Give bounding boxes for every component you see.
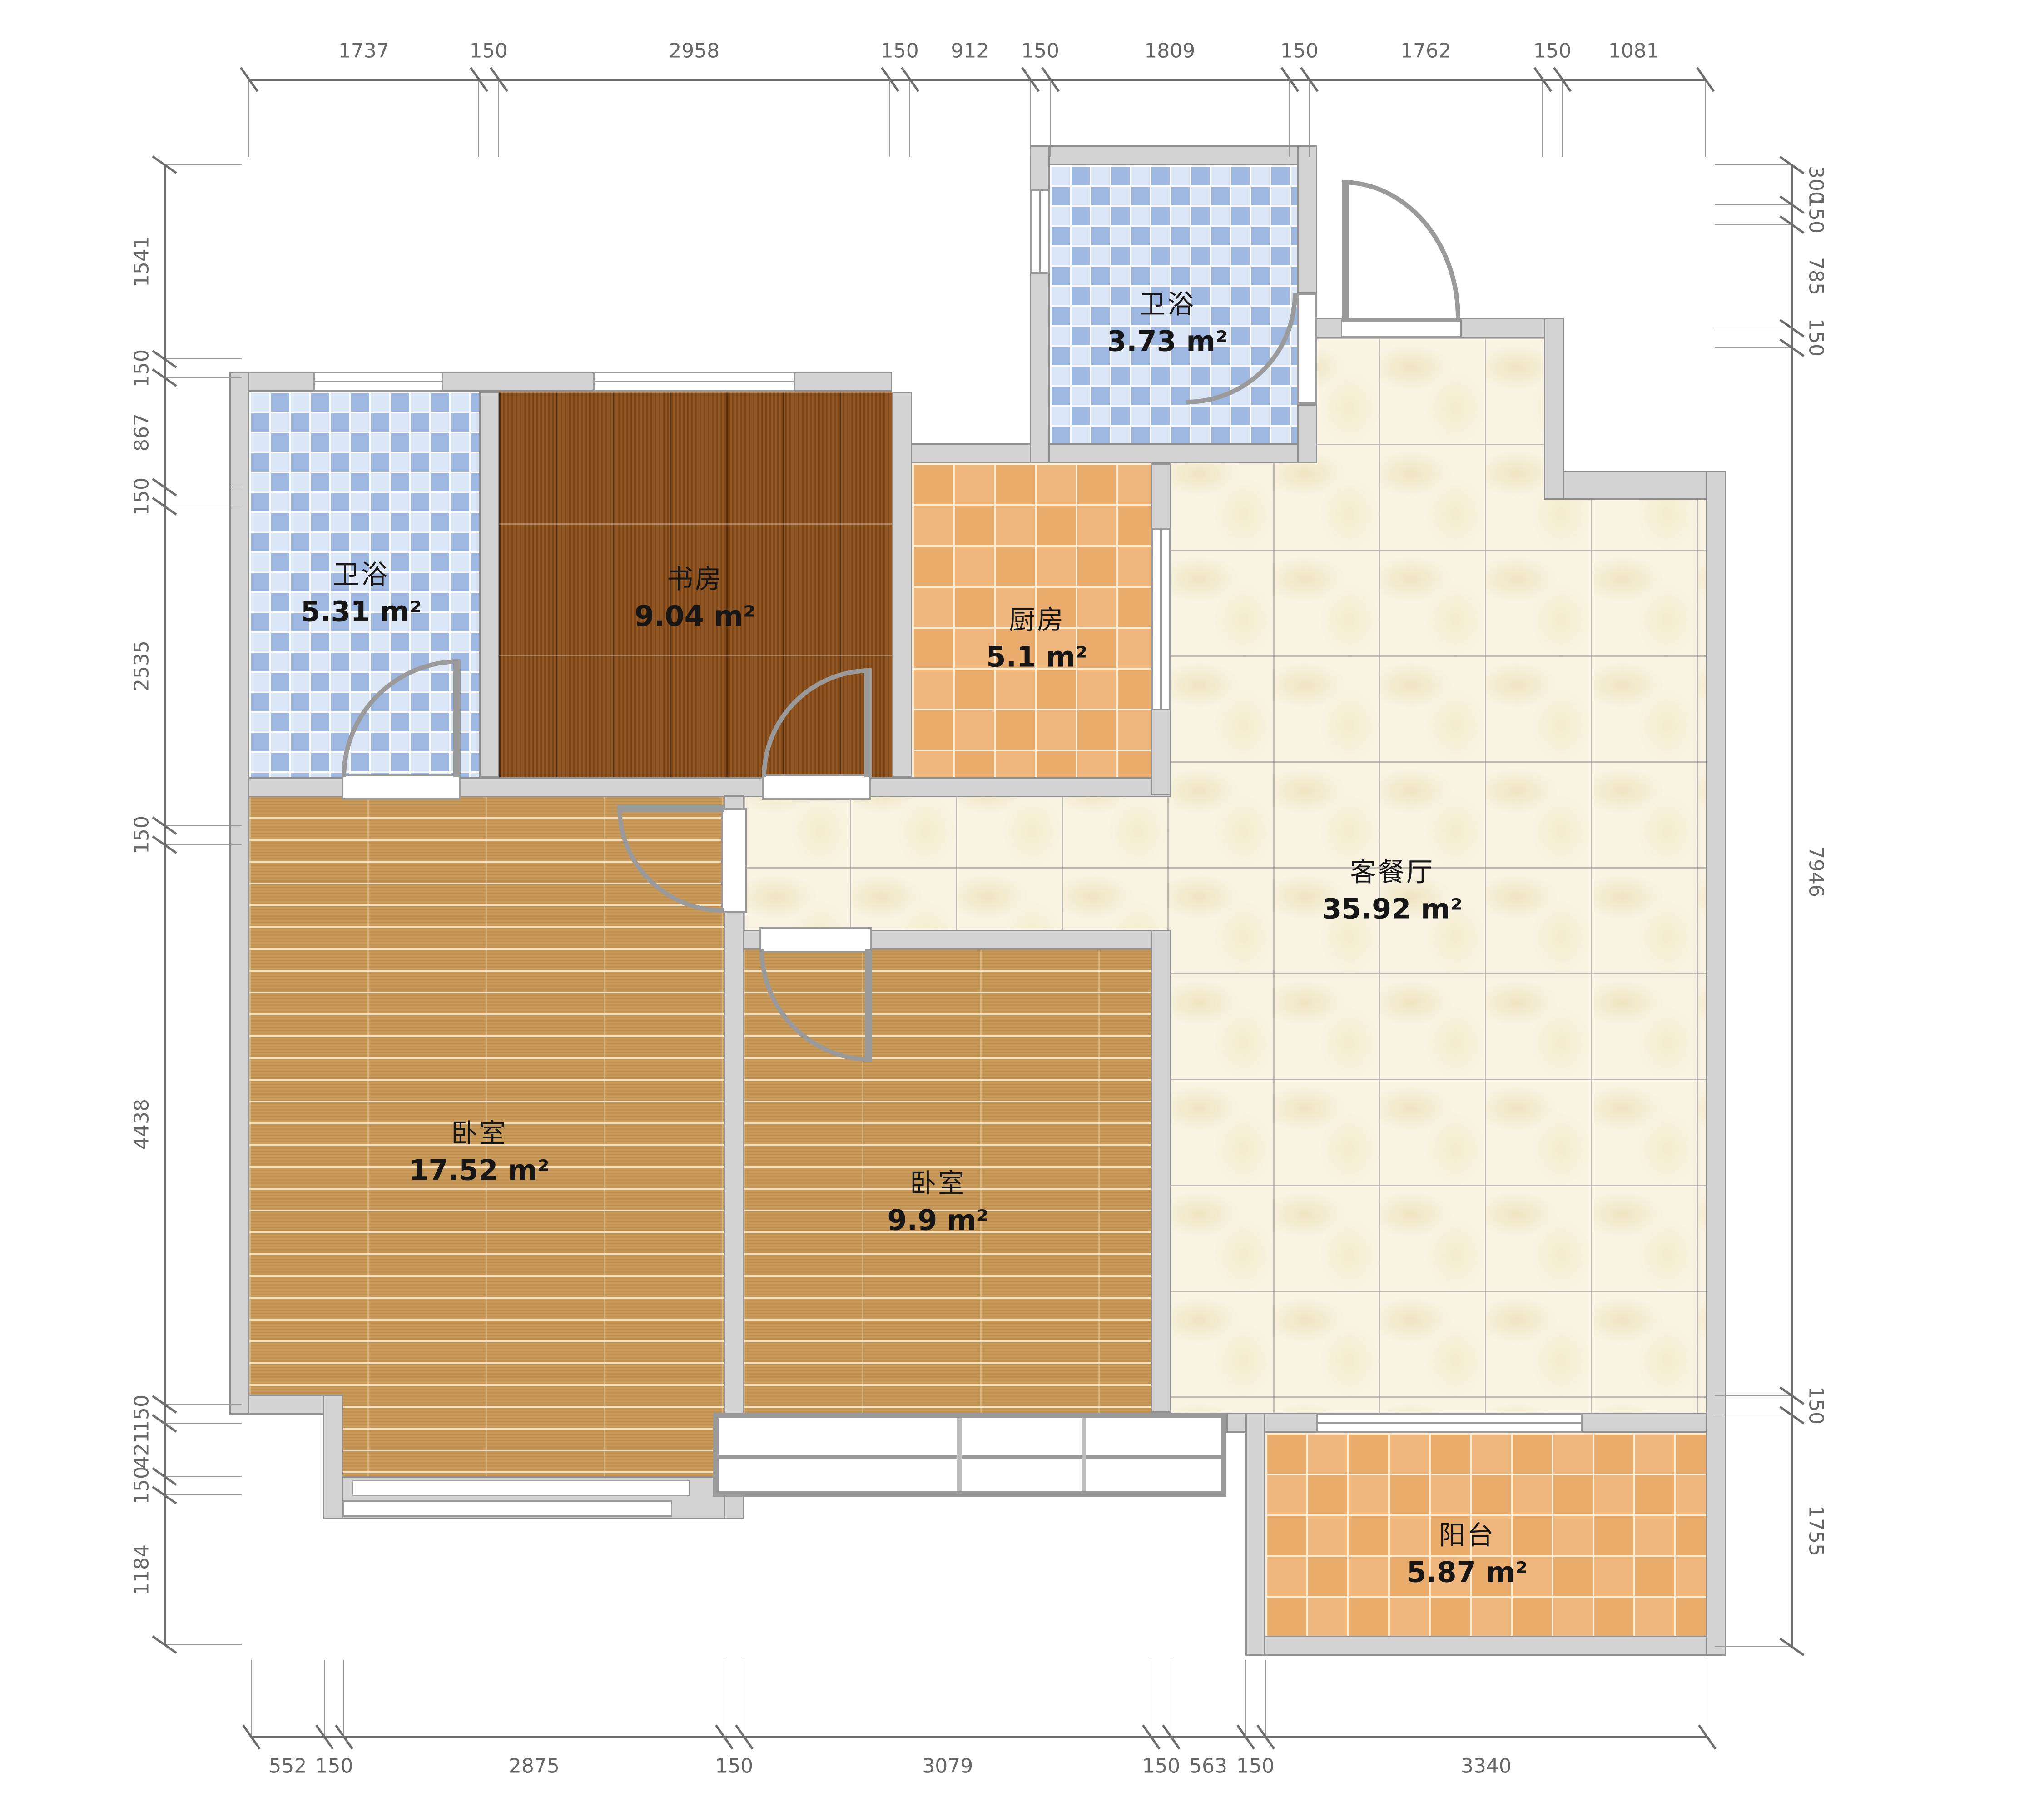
dimension-extension-line <box>164 1644 242 1645</box>
room-area: 5.31 m² <box>301 595 422 628</box>
wall-bath-top-north <box>1030 145 1317 165</box>
dimension-extension-line <box>1562 79 1563 157</box>
room-area: 9.9 m² <box>887 1204 988 1237</box>
dimension-label-bottom-0: 552 <box>268 1755 307 1778</box>
bay-window <box>713 1413 1226 1497</box>
dimension-extension-line <box>164 844 242 845</box>
bedroom-left-door-leaf <box>617 805 724 812</box>
wall-bath-top-east-upper <box>1297 145 1317 293</box>
dimension-label-top-0: 1737 <box>338 40 389 63</box>
room-name: 卫浴 <box>1107 283 1228 321</box>
room-label-study: 书房 9.04 m² <box>635 558 755 633</box>
dimension-extension-line <box>164 1476 242 1477</box>
dimension-label-bottom-4: 3079 <box>922 1755 973 1778</box>
dimension-label-top-5: 150 <box>1021 40 1059 63</box>
window-study-north <box>593 372 795 392</box>
dimension-label-top-4: 912 <box>951 40 989 63</box>
window-bath-top-west <box>1030 189 1050 274</box>
room-name: 卧室 <box>409 1112 549 1150</box>
entry-door-leaf <box>1342 180 1349 318</box>
dimension-line-bottom <box>251 1736 1707 1738</box>
dimension-label-top-6: 1809 <box>1144 40 1195 63</box>
dimension-label-right-6: 1755 <box>1805 1505 1828 1556</box>
bay-window-mullion-vertical-1 <box>957 1418 962 1491</box>
dimension-label-bottom-1: 150 <box>315 1755 353 1778</box>
dimension-extension-line <box>1715 204 1792 205</box>
dimension-label-top-7: 150 <box>1280 40 1319 63</box>
wall-balcony-south <box>1245 1636 1726 1656</box>
dimension-extension-line <box>1715 328 1792 328</box>
wall-bath-study <box>479 392 499 777</box>
dimension-label-top-9: 150 <box>1533 40 1571 63</box>
room-area: 5.87 m² <box>1407 1556 1528 1589</box>
door-opening-entry <box>1342 318 1460 338</box>
dimension-extension-line <box>164 1404 242 1405</box>
dimension-label-top-3: 150 <box>881 40 919 63</box>
dimension-label-bottom-7: 150 <box>1236 1755 1275 1778</box>
dimension-label-bottom-3: 150 <box>715 1755 753 1778</box>
dimension-extension-line <box>1151 1660 1151 1737</box>
door-opening-study <box>762 774 871 800</box>
dimension-extension-line <box>164 1423 242 1424</box>
dimension-label-right-1: 150 <box>1805 195 1828 233</box>
dimension-extension-line <box>744 1660 744 1737</box>
bedroom-mid-door-leaf <box>865 949 872 1062</box>
wall-study-kitchen <box>892 392 912 777</box>
dimension-extension-line <box>164 487 242 487</box>
wall-notch-horizontal <box>1544 471 1726 500</box>
wall-bedroom-mid-east <box>1151 930 1171 1413</box>
dimension-label-left-7: 150 <box>130 1395 154 1433</box>
dimension-label-top-2: 2958 <box>669 40 719 63</box>
dimension-label-bottom-2: 2875 <box>509 1755 560 1778</box>
room-label-bedroom-middle: 卧室 9.9 m² <box>887 1162 988 1237</box>
room-name: 书房 <box>635 558 755 596</box>
room-label-kitchen: 厨房 5.1 m² <box>986 599 1087 674</box>
dimension-extension-line <box>1715 1646 1792 1647</box>
dimension-extension-line <box>889 79 890 157</box>
dimension-extension-line <box>248 79 249 157</box>
floor-plan: 卫浴 3.73 m² 卫浴 5.31 m² 书房 9.04 m² 厨房 5.1 … <box>0 0 2044 1817</box>
dimension-label-left-6: 4438 <box>130 1099 154 1150</box>
dimension-line-top <box>249 79 1705 81</box>
dimension-label-left-2: 867 <box>130 413 154 452</box>
dimension-extension-line <box>164 825 242 826</box>
door-opening-bedroom-mid <box>759 927 872 953</box>
dimension-label-right-5: 150 <box>1805 1386 1828 1425</box>
window-bay-slot-lower <box>343 1500 672 1517</box>
dimension-label-left-8: 421 <box>130 1430 154 1469</box>
room-name: 卧室 <box>887 1162 988 1200</box>
dimension-extension-line <box>1542 79 1543 157</box>
dimension-label-top-8: 1762 <box>1400 40 1451 63</box>
door-opening-bedroom-left <box>721 808 747 913</box>
dimension-label-left-5: 150 <box>130 816 154 854</box>
dimension-label-left-4: 2535 <box>130 640 154 691</box>
door-opening-bath-top <box>1297 293 1317 404</box>
wall-notch-vertical <box>1544 318 1564 500</box>
dimension-extension-line <box>1715 1415 1792 1415</box>
dimension-label-left-10: 1184 <box>130 1544 154 1595</box>
window-bath-left-north <box>313 372 443 392</box>
dimension-label-bottom-5: 150 <box>1142 1755 1180 1778</box>
bay-window-mullion-horizontal <box>719 1455 1221 1459</box>
dimension-extension-line <box>251 1660 252 1737</box>
room-label-bath-left: 卫浴 5.31 m² <box>301 553 422 628</box>
dimension-label-left-1: 150 <box>130 349 154 387</box>
dimension-extension-line <box>1705 79 1706 157</box>
dimension-label-left-9: 150 <box>130 1466 154 1504</box>
wall-west-extension <box>323 1395 343 1519</box>
dimension-extension-line <box>1707 1660 1707 1737</box>
dimension-label-left-3: 150 <box>130 477 154 516</box>
room-area: 17.52 m² <box>409 1154 549 1187</box>
door-opening-bath-left <box>342 774 461 800</box>
dimension-extension-line <box>1715 1395 1792 1396</box>
dimension-extension-line <box>1265 1660 1266 1737</box>
dimension-extension-line <box>324 1660 325 1737</box>
dimension-extension-line <box>1715 347 1792 348</box>
dimension-label-bottom-6: 563 <box>1189 1755 1227 1778</box>
dimension-extension-line <box>724 1660 724 1737</box>
window-living-south <box>1316 1413 1583 1433</box>
room-label-bedroom-left: 卧室 17.52 m² <box>409 1112 549 1187</box>
dimension-label-right-2: 785 <box>1805 257 1828 295</box>
room-area: 5.1 m² <box>986 640 1087 674</box>
dimension-extension-line <box>164 1494 242 1495</box>
wall-bath-top-east-lower <box>1297 404 1317 463</box>
dimension-extension-line <box>164 377 242 378</box>
dimension-extension-line <box>1289 79 1290 157</box>
wall-kitchen-north <box>892 443 1317 463</box>
room-name: 阳台 <box>1407 1514 1528 1552</box>
study-door-leaf <box>864 668 872 777</box>
room-area: 35.92 m² <box>1322 893 1462 926</box>
room-name: 厨房 <box>986 599 1087 637</box>
dimension-extension-line <box>1715 164 1792 165</box>
dimension-label-right-4: 7946 <box>1805 846 1828 897</box>
bath-left-door-leaf <box>453 659 461 777</box>
wall-east-outer <box>1706 471 1726 1656</box>
dimension-extension-line <box>498 79 499 157</box>
window-kitchen-east <box>1151 528 1171 710</box>
dimension-extension-line <box>164 506 242 506</box>
dimension-extension-line <box>1171 1660 1171 1737</box>
room-area: 9.04 m² <box>635 600 755 633</box>
dimension-extension-line <box>478 79 479 157</box>
wall-west-outer <box>229 372 249 1415</box>
dimension-extension-line <box>1030 79 1031 157</box>
wall-balcony-west <box>1245 1413 1265 1656</box>
room-name: 客餐厅 <box>1322 851 1462 889</box>
bay-window-mullion-vertical-2 <box>1082 1418 1086 1491</box>
room-area: 3.73 m² <box>1107 325 1228 358</box>
dimension-extension-line <box>1050 79 1051 157</box>
room-label-bath-top: 卫浴 3.73 m² <box>1107 283 1228 358</box>
dimension-label-left-0: 1541 <box>130 236 154 287</box>
dimension-label-bottom-8: 3340 <box>1461 1755 1512 1778</box>
dimension-extension-line <box>1309 79 1310 157</box>
dimension-label-right-3: 150 <box>1805 318 1828 357</box>
entry-door-arc <box>1342 180 1460 318</box>
dimension-extension-line <box>164 358 242 359</box>
dimension-line-right <box>1791 165 1793 1647</box>
room-name: 卫浴 <box>301 553 422 591</box>
dimension-extension-line <box>1245 1660 1246 1737</box>
dimension-extension-line <box>909 79 910 157</box>
dimension-label-top-10: 1081 <box>1608 40 1659 63</box>
room-label-balcony: 阳台 5.87 m² <box>1407 1514 1528 1589</box>
dimension-extension-line <box>1715 224 1792 225</box>
dimension-label-top-1: 150 <box>470 40 508 63</box>
room-label-living: 客餐厅 35.92 m² <box>1322 851 1462 926</box>
dimension-extension-line <box>164 164 242 165</box>
dimension-extension-line <box>343 1660 344 1737</box>
window-bay-slot-upper <box>352 1480 690 1496</box>
